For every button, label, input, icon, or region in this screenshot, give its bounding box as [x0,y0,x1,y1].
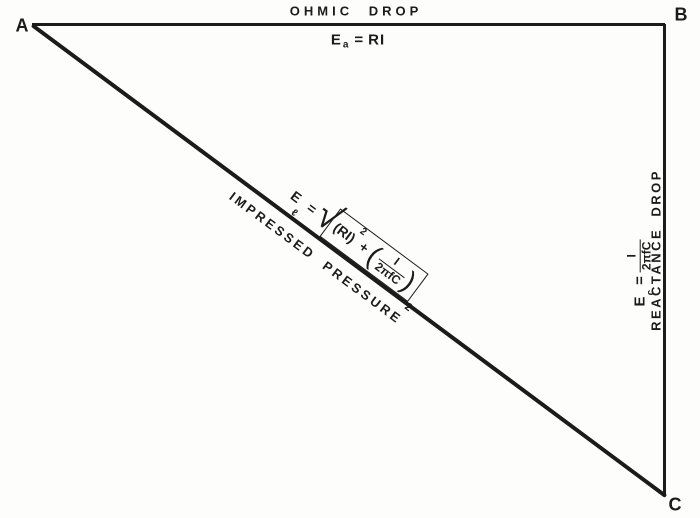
ea-subscript: a [343,40,350,51]
voltage-vector-triangle-diagram: A B C OHMIC DROP Ea=RI REACTANCE DROP Ec… [0,0,700,518]
ea-equals: = [354,32,364,49]
ea-base: E [331,32,342,49]
vertex-c-label: C [669,495,682,516]
ohmic-drop-label: OHMIC DROP [290,4,423,19]
ec-subscript: c [645,290,656,296]
reactance-drop-formula: Ec=I2πfC [626,240,655,307]
ea-rhs: RI [368,32,385,49]
vertex-a-label: A [16,16,29,37]
side-ab-ohmic-drop-line [32,23,665,26]
vertex-b-label: B [675,5,688,26]
el-term1-exponent: 2 [358,226,369,238]
ec-fraction-denominator: 2πfC [640,240,655,273]
side-ac-hypotenuse-line [31,23,667,498]
ec-base: E [632,296,649,306]
el-fraction-numerator: I [391,256,402,269]
ec-fraction: I2πfC [626,240,655,273]
ec-fraction-numerator: I [626,254,640,257]
el-base: E [288,188,305,206]
ec-equals: = [632,276,649,285]
ohmic-drop-formula: Ea=RI [331,32,385,49]
el-subscript: ℓ [289,207,299,219]
